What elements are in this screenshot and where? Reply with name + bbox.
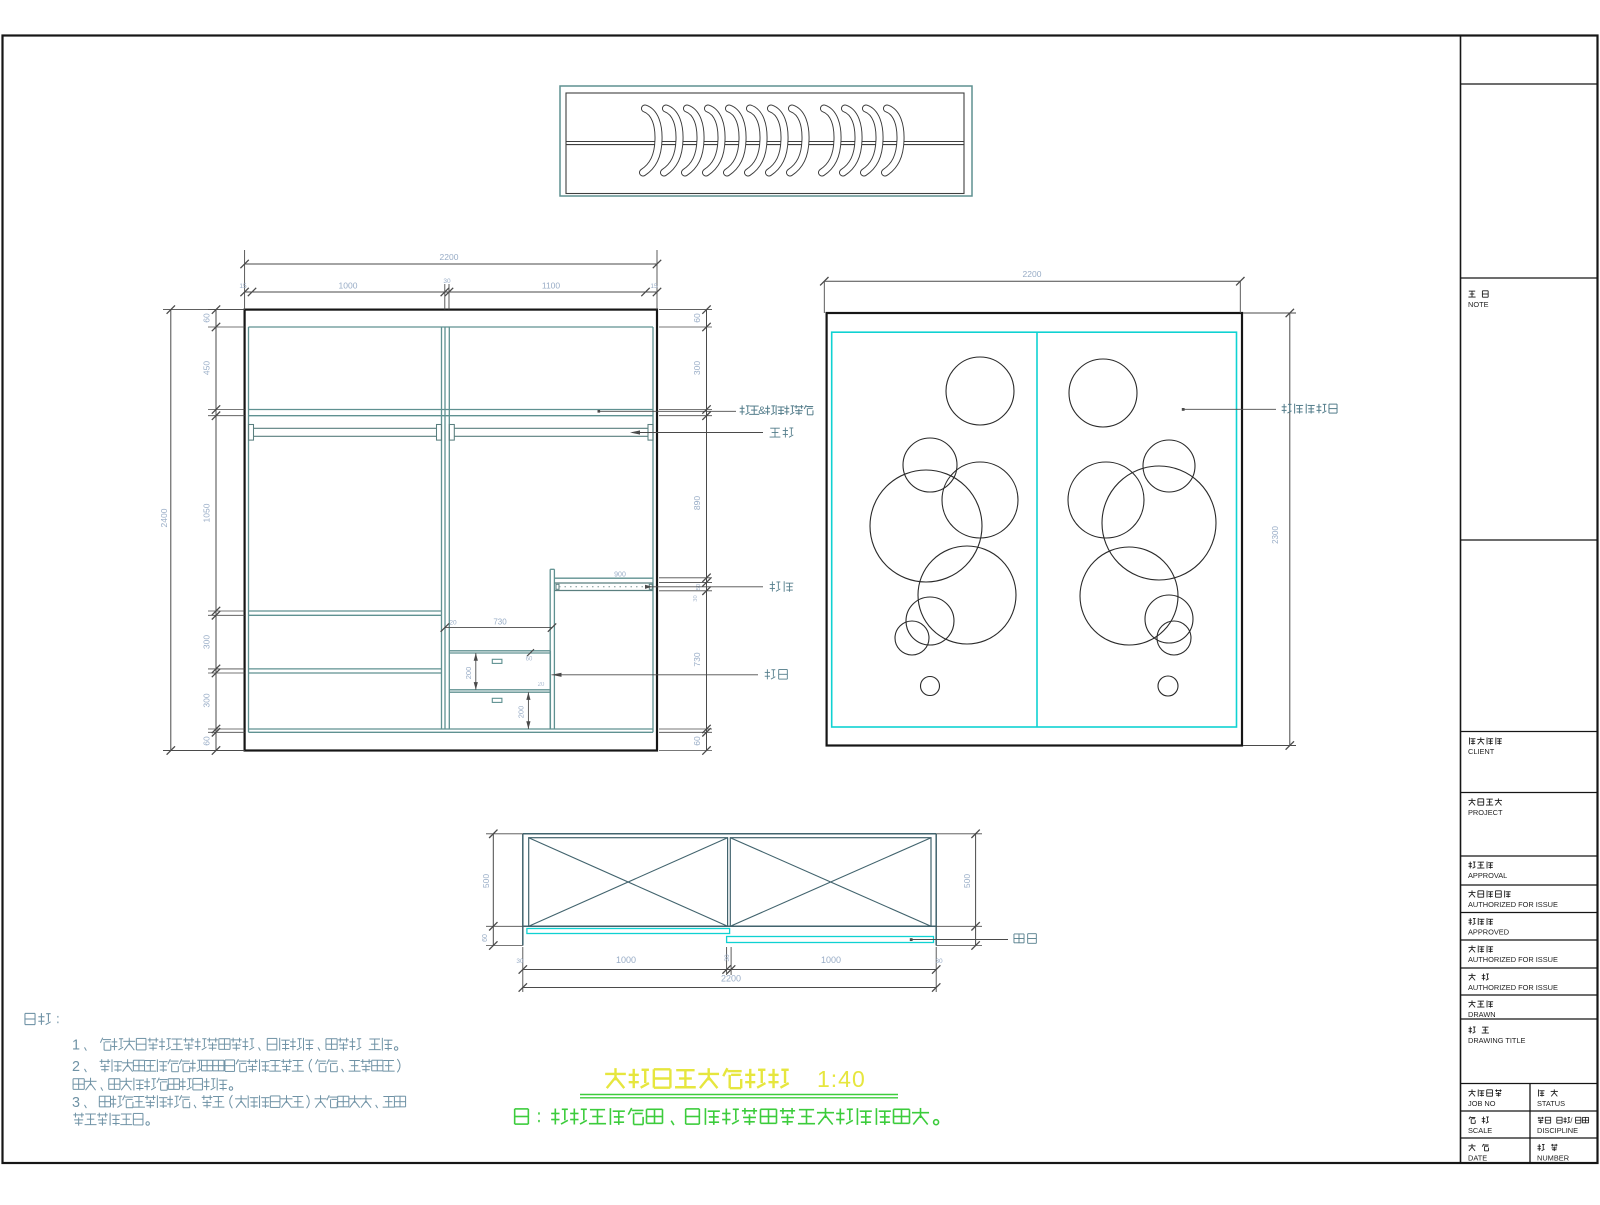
svg-text:15: 15 xyxy=(239,283,247,290)
svg-text:890: 890 xyxy=(692,496,702,510)
svg-text:STATUS: STATUS xyxy=(1537,1099,1565,1108)
svg-text:200: 200 xyxy=(464,667,473,680)
svg-text:60: 60 xyxy=(202,736,212,746)
svg-text:JOB NO: JOB NO xyxy=(1468,1099,1496,1108)
svg-text:APPROVED: APPROVED xyxy=(1468,928,1509,937)
svg-text:AUTHORIZED FOR ISSUE: AUTHORIZED FOR ISSUE xyxy=(1468,955,1558,964)
svg-text:500: 500 xyxy=(962,874,972,888)
svg-text:15: 15 xyxy=(650,283,658,290)
svg-text:1: 1 xyxy=(72,1037,80,1053)
svg-text:200: 200 xyxy=(517,706,526,719)
svg-text:300: 300 xyxy=(202,693,212,707)
svg-text:2300: 2300 xyxy=(1271,526,1280,544)
svg-text:NUMBER: NUMBER xyxy=(1537,1154,1569,1163)
svg-text:2200: 2200 xyxy=(1023,269,1042,279)
svg-text:PROJECT: PROJECT xyxy=(1468,808,1503,817)
svg-text:AUTHORIZED FOR ISSUE: AUTHORIZED FOR ISSUE xyxy=(1468,900,1558,909)
svg-text:2200: 2200 xyxy=(440,252,459,262)
svg-text:2200: 2200 xyxy=(721,974,741,984)
svg-text:1000: 1000 xyxy=(821,955,841,965)
svg-text:60: 60 xyxy=(482,934,489,942)
svg-text:60: 60 xyxy=(526,657,533,663)
svg-text:1000: 1000 xyxy=(339,281,358,291)
svg-text:CLIENT: CLIENT xyxy=(1468,747,1495,756)
svg-text:500: 500 xyxy=(481,874,491,888)
svg-text:1000: 1000 xyxy=(616,955,636,965)
svg-text:DRAWING TITLE: DRAWING TITLE xyxy=(1468,1036,1526,1045)
svg-text:AUTHORIZED FOR ISSUE: AUTHORIZED FOR ISSUE xyxy=(1468,983,1558,992)
svg-text:DRAWN: DRAWN xyxy=(1468,1010,1496,1019)
svg-text:1100: 1100 xyxy=(542,281,561,291)
svg-text:300: 300 xyxy=(692,361,702,375)
svg-text:900: 900 xyxy=(614,572,626,579)
svg-text:60: 60 xyxy=(692,736,702,746)
svg-text:1050: 1050 xyxy=(202,503,212,522)
svg-text:20: 20 xyxy=(538,682,545,688)
svg-text:30: 30 xyxy=(516,958,524,965)
svg-text:2: 2 xyxy=(72,1059,80,1075)
svg-text:20: 20 xyxy=(449,620,457,627)
svg-text:1:40: 1:40 xyxy=(817,1066,866,1092)
svg-text:&: & xyxy=(758,405,766,417)
svg-text:30: 30 xyxy=(443,278,451,285)
svg-text:NOTE: NOTE xyxy=(1468,300,1489,309)
svg-text:/: / xyxy=(1570,1116,1573,1125)
svg-text:60: 60 xyxy=(202,313,212,323)
svg-text:30: 30 xyxy=(935,958,943,965)
svg-text:30: 30 xyxy=(693,595,699,601)
svg-text:DISCIPLINE: DISCIPLINE xyxy=(1537,1126,1578,1135)
svg-text:30: 30 xyxy=(724,954,731,962)
svg-text:SCALE: SCALE xyxy=(1468,1126,1492,1135)
svg-text:730: 730 xyxy=(692,652,702,666)
svg-text:2400: 2400 xyxy=(159,508,169,527)
svg-text:300: 300 xyxy=(202,635,212,649)
svg-text:450: 450 xyxy=(202,361,212,375)
svg-text:60: 60 xyxy=(692,313,702,323)
svg-text:DATE: DATE xyxy=(1468,1154,1487,1163)
svg-text:730: 730 xyxy=(493,618,507,627)
svg-text:APPROVAL: APPROVAL xyxy=(1468,871,1507,880)
svg-text:3: 3 xyxy=(72,1095,80,1111)
